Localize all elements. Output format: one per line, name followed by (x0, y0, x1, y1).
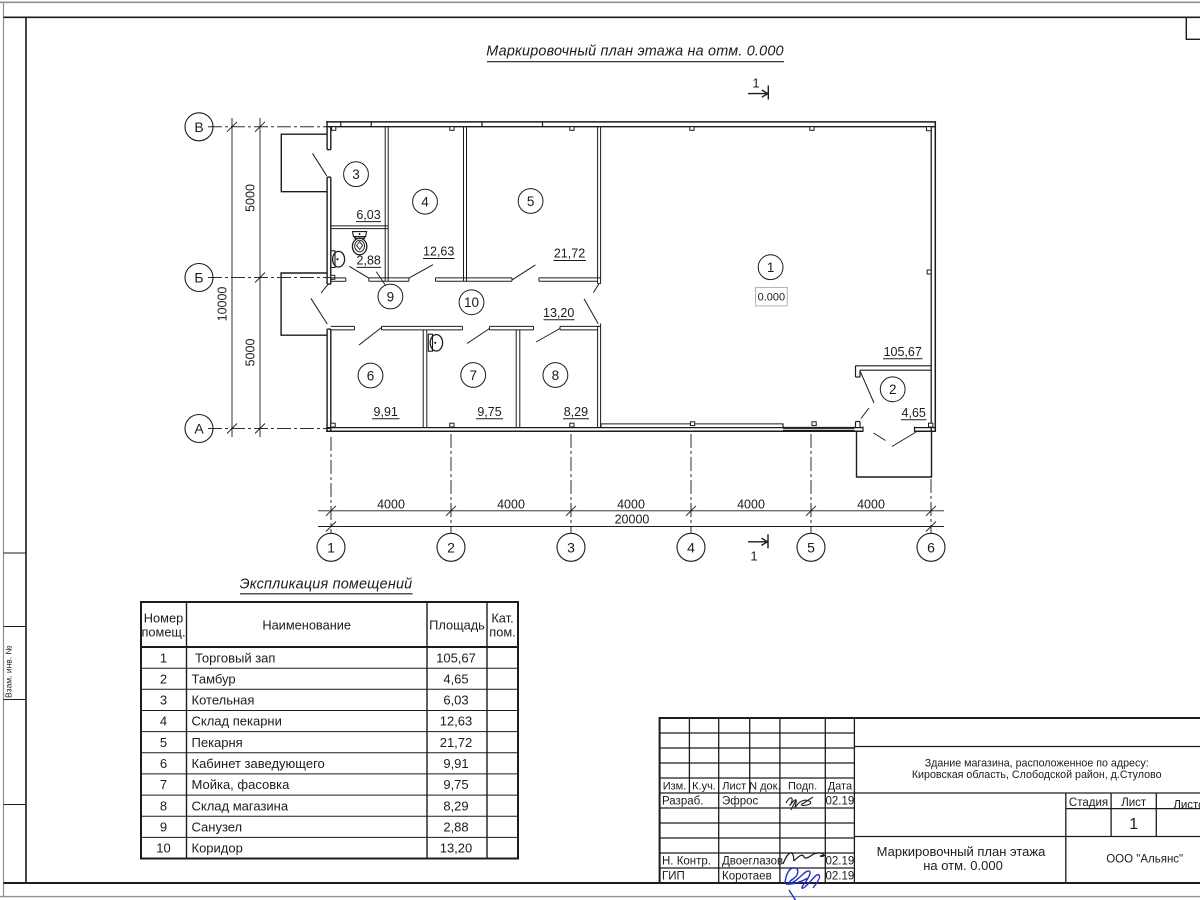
svg-text:10000: 10000 (216, 287, 230, 322)
svg-text:6,03: 6,03 (443, 693, 468, 708)
svg-text:8: 8 (552, 368, 560, 383)
svg-text:Номер: Номер (144, 611, 183, 626)
svg-text:Маркировочный план этажа на от: Маркировочный план этажа на отм. 0.000 (486, 44, 783, 60)
svg-text:К.уч.: К.уч. (692, 781, 716, 793)
svg-text:2: 2 (447, 539, 455, 555)
svg-text:4: 4 (421, 195, 429, 210)
svg-text:9,75: 9,75 (477, 405, 501, 419)
svg-text:4000: 4000 (737, 497, 765, 511)
svg-text:Склад магазина: Склад магазина (192, 798, 289, 813)
svg-text:1: 1 (1129, 816, 1138, 833)
svg-text:Экспликация помещений: Экспликация помещений (240, 577, 413, 593)
svg-text:2,88: 2,88 (357, 254, 381, 268)
svg-text:5: 5 (160, 735, 167, 750)
svg-text:3: 3 (160, 693, 167, 708)
svg-text:Котельная: Котельная (192, 693, 255, 708)
svg-text:Тамбур: Тамбур (192, 671, 236, 686)
svg-text:Подп.: Подп. (788, 781, 817, 793)
svg-text:В: В (194, 119, 203, 135)
svg-text:0.000: 0.000 (758, 292, 786, 304)
svg-text:1: 1 (767, 260, 775, 275)
svg-text:6: 6 (367, 368, 375, 383)
svg-text:4,65: 4,65 (902, 406, 926, 420)
svg-text:Стадия: Стадия (1069, 797, 1108, 809)
svg-text:Площадь: Площадь (429, 618, 485, 633)
svg-text:12,63: 12,63 (423, 245, 454, 259)
svg-text:13,20: 13,20 (543, 306, 574, 320)
svg-text:4000: 4000 (377, 497, 405, 511)
svg-text:9,75: 9,75 (443, 777, 468, 792)
svg-text:21,72: 21,72 (440, 735, 473, 750)
svg-text:Кабинет заведующего: Кабинет заведующего (192, 756, 325, 771)
svg-text:2: 2 (160, 671, 167, 686)
svg-text:4000: 4000 (857, 497, 885, 511)
svg-text:21,72: 21,72 (554, 247, 585, 261)
svg-text:4: 4 (160, 714, 167, 729)
svg-text:8,29: 8,29 (564, 405, 588, 419)
svg-text:3: 3 (567, 539, 575, 555)
svg-text:1: 1 (752, 76, 759, 91)
svg-text:ГИП: ГИП (662, 871, 685, 883)
svg-text:Листов: Листов (1173, 800, 1200, 812)
svg-text:1: 1 (160, 650, 167, 665)
svg-text:N док.: N док. (749, 781, 780, 793)
svg-text:02.19: 02.19 (826, 796, 855, 808)
svg-text:12,63: 12,63 (440, 714, 473, 729)
svg-text:10: 10 (156, 841, 170, 856)
svg-text:Здание магазина, расположенное: Здание магазина, расположенное по адресу… (925, 758, 1149, 770)
svg-text:9,91: 9,91 (374, 405, 398, 419)
svg-text:7: 7 (469, 368, 477, 383)
svg-text:1: 1 (750, 549, 757, 564)
svg-text:5: 5 (807, 539, 815, 555)
svg-text:Торговый зап: Торговый зап (195, 650, 275, 665)
svg-text:8,29: 8,29 (443, 798, 468, 813)
svg-text:02.19: 02.19 (826, 871, 855, 883)
svg-text:Лист: Лист (1121, 797, 1147, 809)
svg-text:Кировская область, Слободской: Кировская область, Слободской район, д.С… (912, 769, 1162, 781)
svg-text:Наименование: Наименование (262, 618, 351, 633)
svg-text:Маркировочный план этажа: Маркировочный план этажа (877, 844, 1046, 859)
svg-text:Пекарня: Пекарня (192, 735, 243, 750)
svg-text:5000: 5000 (244, 184, 258, 212)
svg-text:Н. Контр.: Н. Контр. (662, 856, 711, 868)
svg-text:Коротаев: Коротаев (722, 871, 772, 883)
svg-text:3: 3 (352, 167, 360, 182)
svg-text:4: 4 (687, 539, 695, 555)
svg-text:Дата: Дата (828, 781, 853, 793)
svg-text:Коридор: Коридор (192, 841, 243, 856)
svg-text:Эфрос: Эфрос (722, 796, 759, 808)
svg-text:4000: 4000 (617, 497, 645, 511)
svg-text:9,91: 9,91 (443, 756, 468, 771)
svg-text:4000: 4000 (497, 497, 525, 511)
svg-text:А: А (194, 421, 204, 437)
svg-text:6,03: 6,03 (356, 208, 380, 222)
svg-text:Взам. инв. №: Взам. инв. № (4, 645, 14, 698)
svg-text:пом.: пом. (489, 625, 515, 640)
svg-text:Склад пекарни: Склад пекарни (192, 714, 282, 729)
svg-text:Изм.: Изм. (663, 781, 687, 793)
svg-text:2,88: 2,88 (443, 820, 468, 835)
svg-text:помещ.: помещ. (141, 625, 185, 640)
svg-text:10: 10 (464, 295, 479, 310)
svg-text:6: 6 (927, 539, 935, 555)
svg-text:Кат.: Кат. (491, 611, 513, 626)
svg-text:9: 9 (387, 289, 395, 304)
svg-text:ООО "Альянс": ООО "Альянс" (1106, 854, 1183, 866)
svg-text:5000: 5000 (244, 339, 258, 367)
svg-text:7: 7 (160, 777, 167, 792)
svg-text:02.19: 02.19 (826, 856, 855, 868)
svg-text:2: 2 (889, 382, 897, 397)
svg-text:13,20: 13,20 (440, 841, 473, 856)
svg-text:Лист: Лист (722, 781, 746, 793)
svg-text:105,67: 105,67 (884, 345, 922, 359)
svg-text:20000: 20000 (615, 513, 650, 527)
svg-text:9: 9 (160, 820, 167, 835)
svg-text:на отм. 0.000: на отм. 0.000 (923, 858, 1003, 873)
svg-text:Санузел: Санузел (192, 820, 243, 835)
svg-text:Б: Б (194, 270, 203, 286)
svg-text:Разраб.: Разраб. (662, 796, 703, 808)
svg-text:4,65: 4,65 (443, 671, 468, 686)
svg-text:Мойка, фасовка: Мойка, фасовка (192, 777, 291, 792)
svg-text:105,67: 105,67 (436, 650, 476, 665)
svg-text:5: 5 (527, 194, 535, 209)
svg-text:Двоеглазов: Двоеглазов (722, 856, 783, 868)
svg-text:1: 1 (327, 539, 335, 555)
svg-text:6: 6 (160, 756, 167, 771)
svg-text:8: 8 (160, 798, 167, 813)
